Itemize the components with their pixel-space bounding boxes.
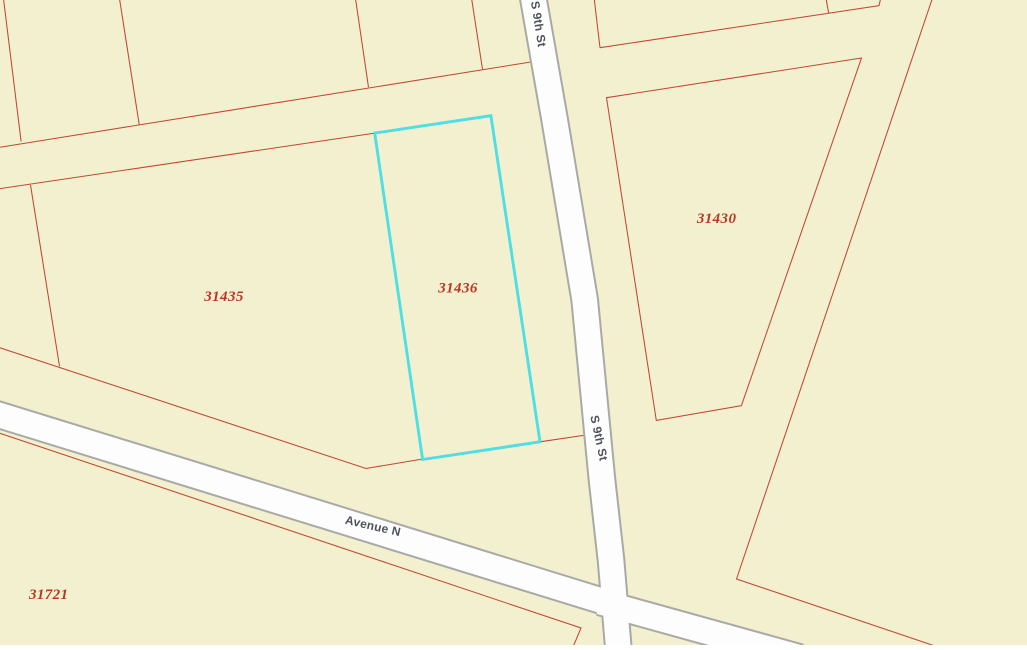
svg-text:31721: 31721 xyxy=(28,587,69,603)
svg-text:31436: 31436 xyxy=(437,281,478,297)
svg-text:31435: 31435 xyxy=(203,289,244,305)
svg-text:31430: 31430 xyxy=(696,211,737,227)
